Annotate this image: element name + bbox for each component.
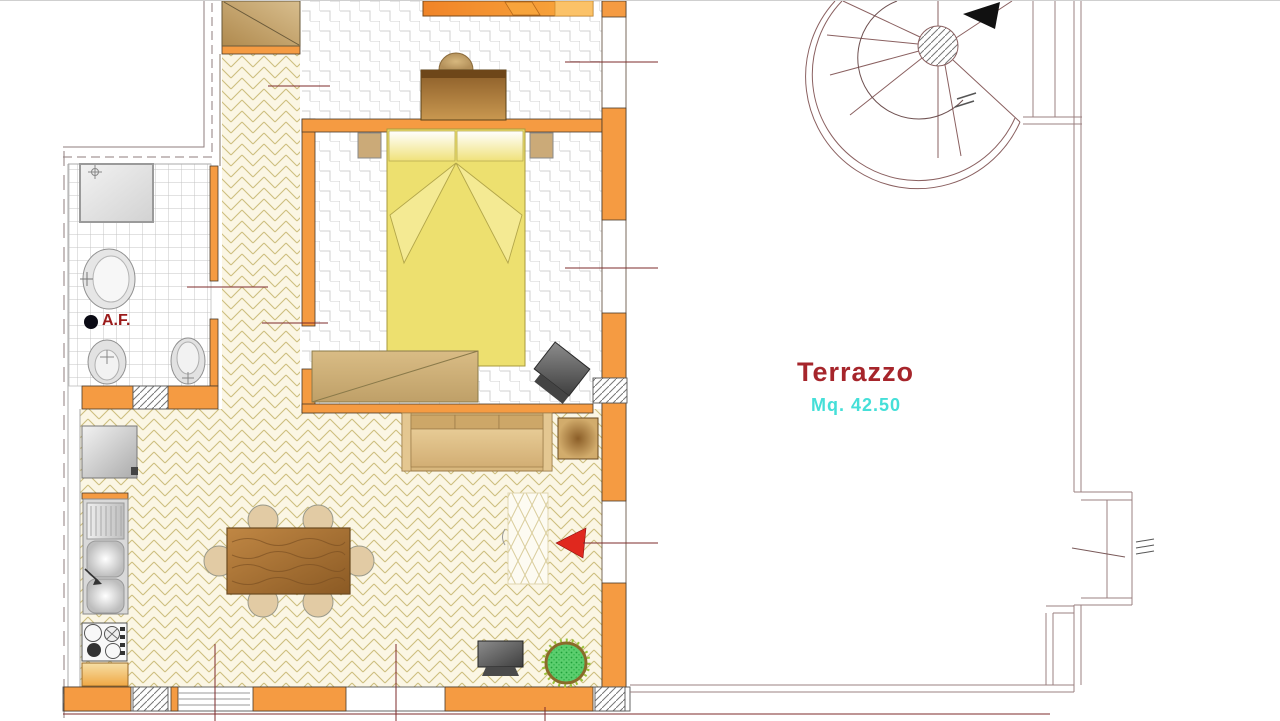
wall-bathroom-bottom-left bbox=[82, 386, 133, 409]
pillow-right bbox=[457, 131, 523, 161]
plant-texture bbox=[548, 645, 584, 681]
wall-bathroom-right-lower bbox=[210, 319, 218, 386]
terrace-right-edge-upper bbox=[1074, 1, 1081, 492]
stove-knob-2 bbox=[120, 635, 125, 639]
fridge-handle bbox=[131, 467, 138, 475]
dashed-outline bbox=[63, 1, 212, 157]
washbasin-bowl bbox=[93, 256, 129, 302]
sofa-cushion-3 bbox=[499, 415, 543, 429]
spiral-staircase bbox=[806, 1, 1020, 189]
living-tv-base bbox=[482, 667, 519, 676]
wall-bottom-3 bbox=[445, 687, 593, 711]
wall-bottom-stub bbox=[171, 687, 178, 711]
fridge bbox=[82, 426, 137, 478]
living-tv-body bbox=[478, 641, 523, 667]
stair-outer-arc bbox=[806, 1, 1020, 189]
sink-basin-1 bbox=[87, 541, 124, 577]
terrace-label: Terrazzo bbox=[797, 357, 914, 388]
side-table bbox=[558, 418, 598, 459]
rug bbox=[508, 493, 548, 584]
sideboard-door bbox=[555, 1, 593, 16]
upper-desk-edge bbox=[421, 70, 506, 78]
stair-outer-arc-inner bbox=[812, 1, 1015, 181]
kitchen-counter-strip bbox=[82, 493, 128, 499]
sofa-arm-left bbox=[402, 413, 411, 471]
wall-corridor-top bbox=[222, 46, 300, 54]
cold-water-label: A.F. bbox=[102, 312, 130, 330]
burner-3 bbox=[87, 643, 101, 657]
corridor-floor bbox=[222, 54, 300, 413]
stair-break-ticks bbox=[1136, 539, 1154, 554]
wall-right-1 bbox=[602, 1, 626, 17]
bedroom-terrace-threshold bbox=[593, 378, 627, 403]
kitchen-cabinet bbox=[82, 663, 128, 686]
wall-bathroom-bottom-right bbox=[168, 386, 218, 409]
window-louvres bbox=[178, 693, 250, 705]
stove-knob-4 bbox=[120, 651, 125, 655]
sofa-cushion-1 bbox=[411, 415, 455, 429]
stair-direction-arrow-icon bbox=[963, 2, 1000, 29]
stove-knob-1 bbox=[120, 627, 125, 631]
floor-plan: Terrazzo Mq. 42.50 A.F. bbox=[0, 0, 1280, 721]
wall-bottom-1 bbox=[64, 687, 131, 711]
bottom-windows bbox=[178, 693, 250, 705]
wall-bathroom-right-upper bbox=[210, 166, 218, 281]
stove-knob-3 bbox=[120, 643, 125, 647]
nightstand-left bbox=[358, 133, 381, 158]
wall-right-3 bbox=[602, 313, 626, 378]
wall-right-2 bbox=[602, 108, 626, 220]
sofa-arm-right bbox=[543, 413, 552, 471]
nightstand-right bbox=[530, 133, 553, 158]
terrace-bottom-step bbox=[1046, 606, 1074, 685]
stair-center-column bbox=[918, 26, 958, 66]
bottom-threshold-left bbox=[133, 687, 168, 711]
wall-right-5 bbox=[602, 583, 626, 687]
wall-bottom-2 bbox=[253, 687, 346, 711]
toilet-bowl bbox=[177, 342, 199, 374]
pillow-left bbox=[389, 131, 455, 161]
sink-basin-2 bbox=[87, 579, 124, 613]
cold-water-dot-icon bbox=[84, 315, 98, 329]
stair-landing-walls bbox=[1023, 1, 1082, 124]
sofa-cushion-2 bbox=[455, 415, 499, 429]
bathroom-threshold bbox=[133, 386, 168, 409]
terrace-area-label: Mq. 42.50 bbox=[811, 395, 901, 416]
bottom-threshold-right bbox=[595, 687, 625, 711]
wall-right-4 bbox=[602, 403, 626, 501]
floor-plan-drawing bbox=[0, 1, 1280, 721]
exterior-stair-recess bbox=[1074, 492, 1132, 605]
upper-floor-outline bbox=[63, 1, 204, 147]
wall-bedroom-bottom bbox=[302, 404, 593, 413]
terrace-outline bbox=[630, 1, 1154, 692]
terrace-right-edge-lower bbox=[1074, 605, 1081, 692]
drainer-ridges bbox=[91, 506, 121, 536]
terrace-bottom-edge bbox=[630, 685, 1074, 692]
stair-break-diagonal bbox=[1072, 548, 1125, 557]
wall-corridor-right-upper bbox=[302, 119, 315, 326]
shower-tray bbox=[80, 164, 153, 222]
sofa-seat bbox=[411, 429, 543, 467]
